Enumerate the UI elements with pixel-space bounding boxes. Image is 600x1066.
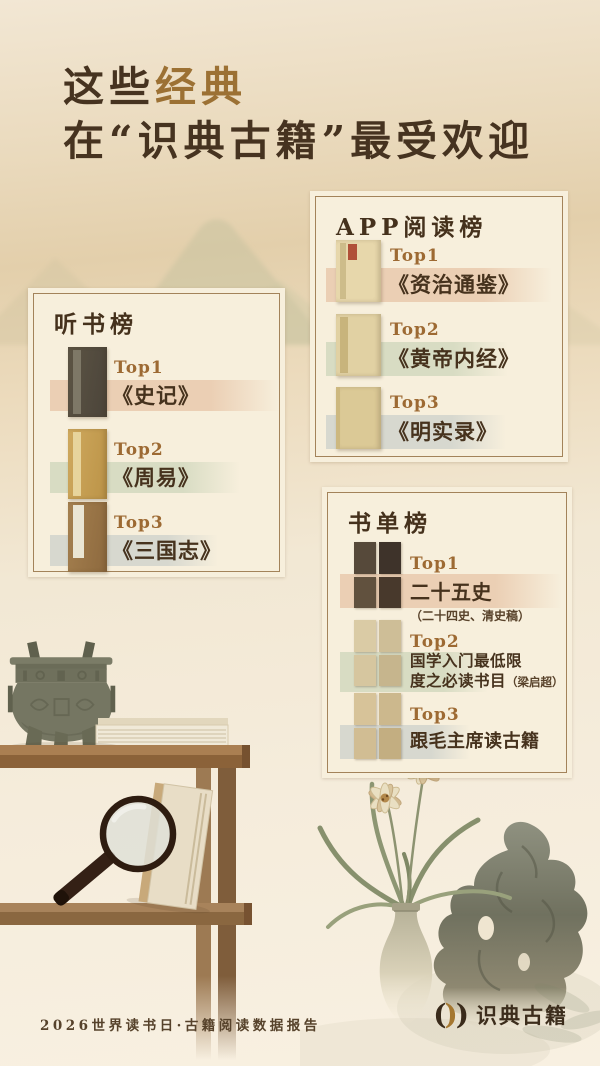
- ranking-panel-booklist: 书单榜 Top1 二十五史（二十四史、清史稿） Top2 国学入门最低限 度之必…: [322, 487, 572, 778]
- grid-cell: [379, 620, 401, 652]
- book-cover-thumbnail: [68, 429, 107, 499]
- book-spine-strip: [73, 350, 81, 414]
- panel-title-app: APP阅读榜: [336, 208, 487, 242]
- rank-label: Top1: [114, 358, 164, 378]
- mark-mid: ): [445, 998, 456, 1031]
- rank-entry: Top3 《三国志》: [28, 502, 285, 582]
- book-cover-thumbnail: [68, 347, 107, 417]
- brand-name: 识典古籍: [476, 1000, 568, 1030]
- brand-logo: ()) 识典古籍: [433, 1000, 568, 1030]
- grid-cell: [354, 577, 376, 609]
- book-title-block: 跟毛主席读古籍: [410, 727, 540, 753]
- book-brackets-icon: ()): [433, 1001, 467, 1029]
- book-cover-grid: [354, 542, 401, 608]
- ranking-panel-listen: 听书榜 Top1 《史记》 Top2 《周易》 Top3 《三国志》: [28, 288, 285, 577]
- grid-cell: [379, 577, 401, 609]
- book-title: 《资治通鉴》: [388, 268, 520, 302]
- book-spine-strip: [73, 505, 84, 558]
- rank-entry: Top1 《史记》: [28, 347, 285, 427]
- book-title-block: 二十五史（二十四史、清史稿）: [410, 576, 572, 624]
- title-part-gold: 经典: [155, 63, 247, 111]
- book-spine-strip: [340, 317, 348, 373]
- book-spine-strip: [340, 243, 346, 299]
- rank-entry: Top1 《资治通鉴》: [310, 240, 568, 320]
- wooden-shelf-lower-icon: [0, 903, 252, 925]
- rank-label: Top2: [114, 440, 164, 460]
- book-cover-thumbnail: [336, 314, 381, 376]
- grid-cell: [379, 542, 401, 574]
- book-cover-grid: [354, 620, 401, 686]
- book-cover-grid: [354, 693, 401, 759]
- book-title: 《三国志》: [112, 535, 222, 566]
- grid-cell: [379, 728, 401, 760]
- book-cover-thumbnail: [68, 502, 107, 572]
- book-title: 《明实录》: [388, 415, 498, 449]
- ranking-panel-app: APP阅读榜 Top1 《资治通鉴》 Top2 《黄帝内经》 Top3 《明实录…: [310, 191, 568, 462]
- report-caption: 2026世界读书日·古籍阅读数据报告: [40, 1014, 321, 1034]
- orchid-vase-icon: [380, 903, 433, 1024]
- book-title: 《黄帝内经》: [388, 342, 520, 376]
- title-line-2: 在“识典古籍”最受欢迎: [63, 114, 534, 168]
- book-title: 跟毛主席读古籍: [410, 731, 540, 752]
- grid-cell: [354, 693, 376, 725]
- book-title: 二十五史: [410, 580, 492, 604]
- grid-cell: [379, 655, 401, 687]
- rank-label: Top2: [390, 320, 440, 340]
- rank-label: Top3: [114, 513, 164, 533]
- shelf-scene-illustration: [0, 620, 260, 1066]
- rank-entry: Top3 《明实录》: [310, 387, 568, 467]
- rank-label: Top3: [390, 393, 440, 413]
- panel-title-listen: 听书榜: [54, 305, 138, 339]
- wooden-shelf-top-icon: [0, 742, 250, 768]
- rank-label: Top3: [410, 705, 460, 725]
- mark-left: (: [433, 998, 444, 1031]
- book-cover-thumbnail: [336, 240, 381, 302]
- panel-title-booklist: 书单榜: [348, 504, 432, 538]
- book-title: 《史记》: [112, 380, 200, 411]
- rank-entry: Top2 《周易》: [28, 429, 285, 509]
- page-title: 这些经典 在“识典古籍”最受欢迎: [63, 60, 534, 168]
- rank-entry: Top3 跟毛主席读古籍: [322, 693, 572, 773]
- rank-label: Top2: [410, 632, 460, 652]
- rank-entry: Top1 二十五史（二十四史、清史稿）: [322, 542, 572, 622]
- grid-cell: [354, 728, 376, 760]
- grid-cell: [354, 620, 376, 652]
- grid-cell: [379, 693, 401, 725]
- poster-canvas: 这些经典 在“识典古籍”最受欢迎 APP阅读榜 Top1 《资治通鉴》 Top2…: [0, 0, 600, 1066]
- title-part-dark: 这些: [63, 63, 155, 111]
- book-subtitle: （梁启超）: [506, 675, 564, 689]
- book-spine-strip: [73, 432, 81, 496]
- rank-label: Top1: [410, 554, 460, 574]
- rank-label: Top1: [390, 246, 440, 266]
- book-title: 《周易》: [112, 462, 200, 493]
- book-title-block: 国学入门最低限 度之必读书目（梁启超）: [410, 651, 570, 692]
- grid-cell: [354, 655, 376, 687]
- rank-entry: Top2 《黄帝内经》: [310, 314, 568, 394]
- book-label-tag: [348, 244, 357, 260]
- mark-right: ): [456, 998, 467, 1031]
- grid-cell: [354, 542, 376, 574]
- rank-entry: Top2 国学入门最低限 度之必读书目（梁启超）: [322, 620, 572, 700]
- title-line-1: 这些经典: [63, 60, 534, 114]
- book-stack-icon: [96, 718, 228, 747]
- book-cover-thumbnail: [336, 387, 381, 449]
